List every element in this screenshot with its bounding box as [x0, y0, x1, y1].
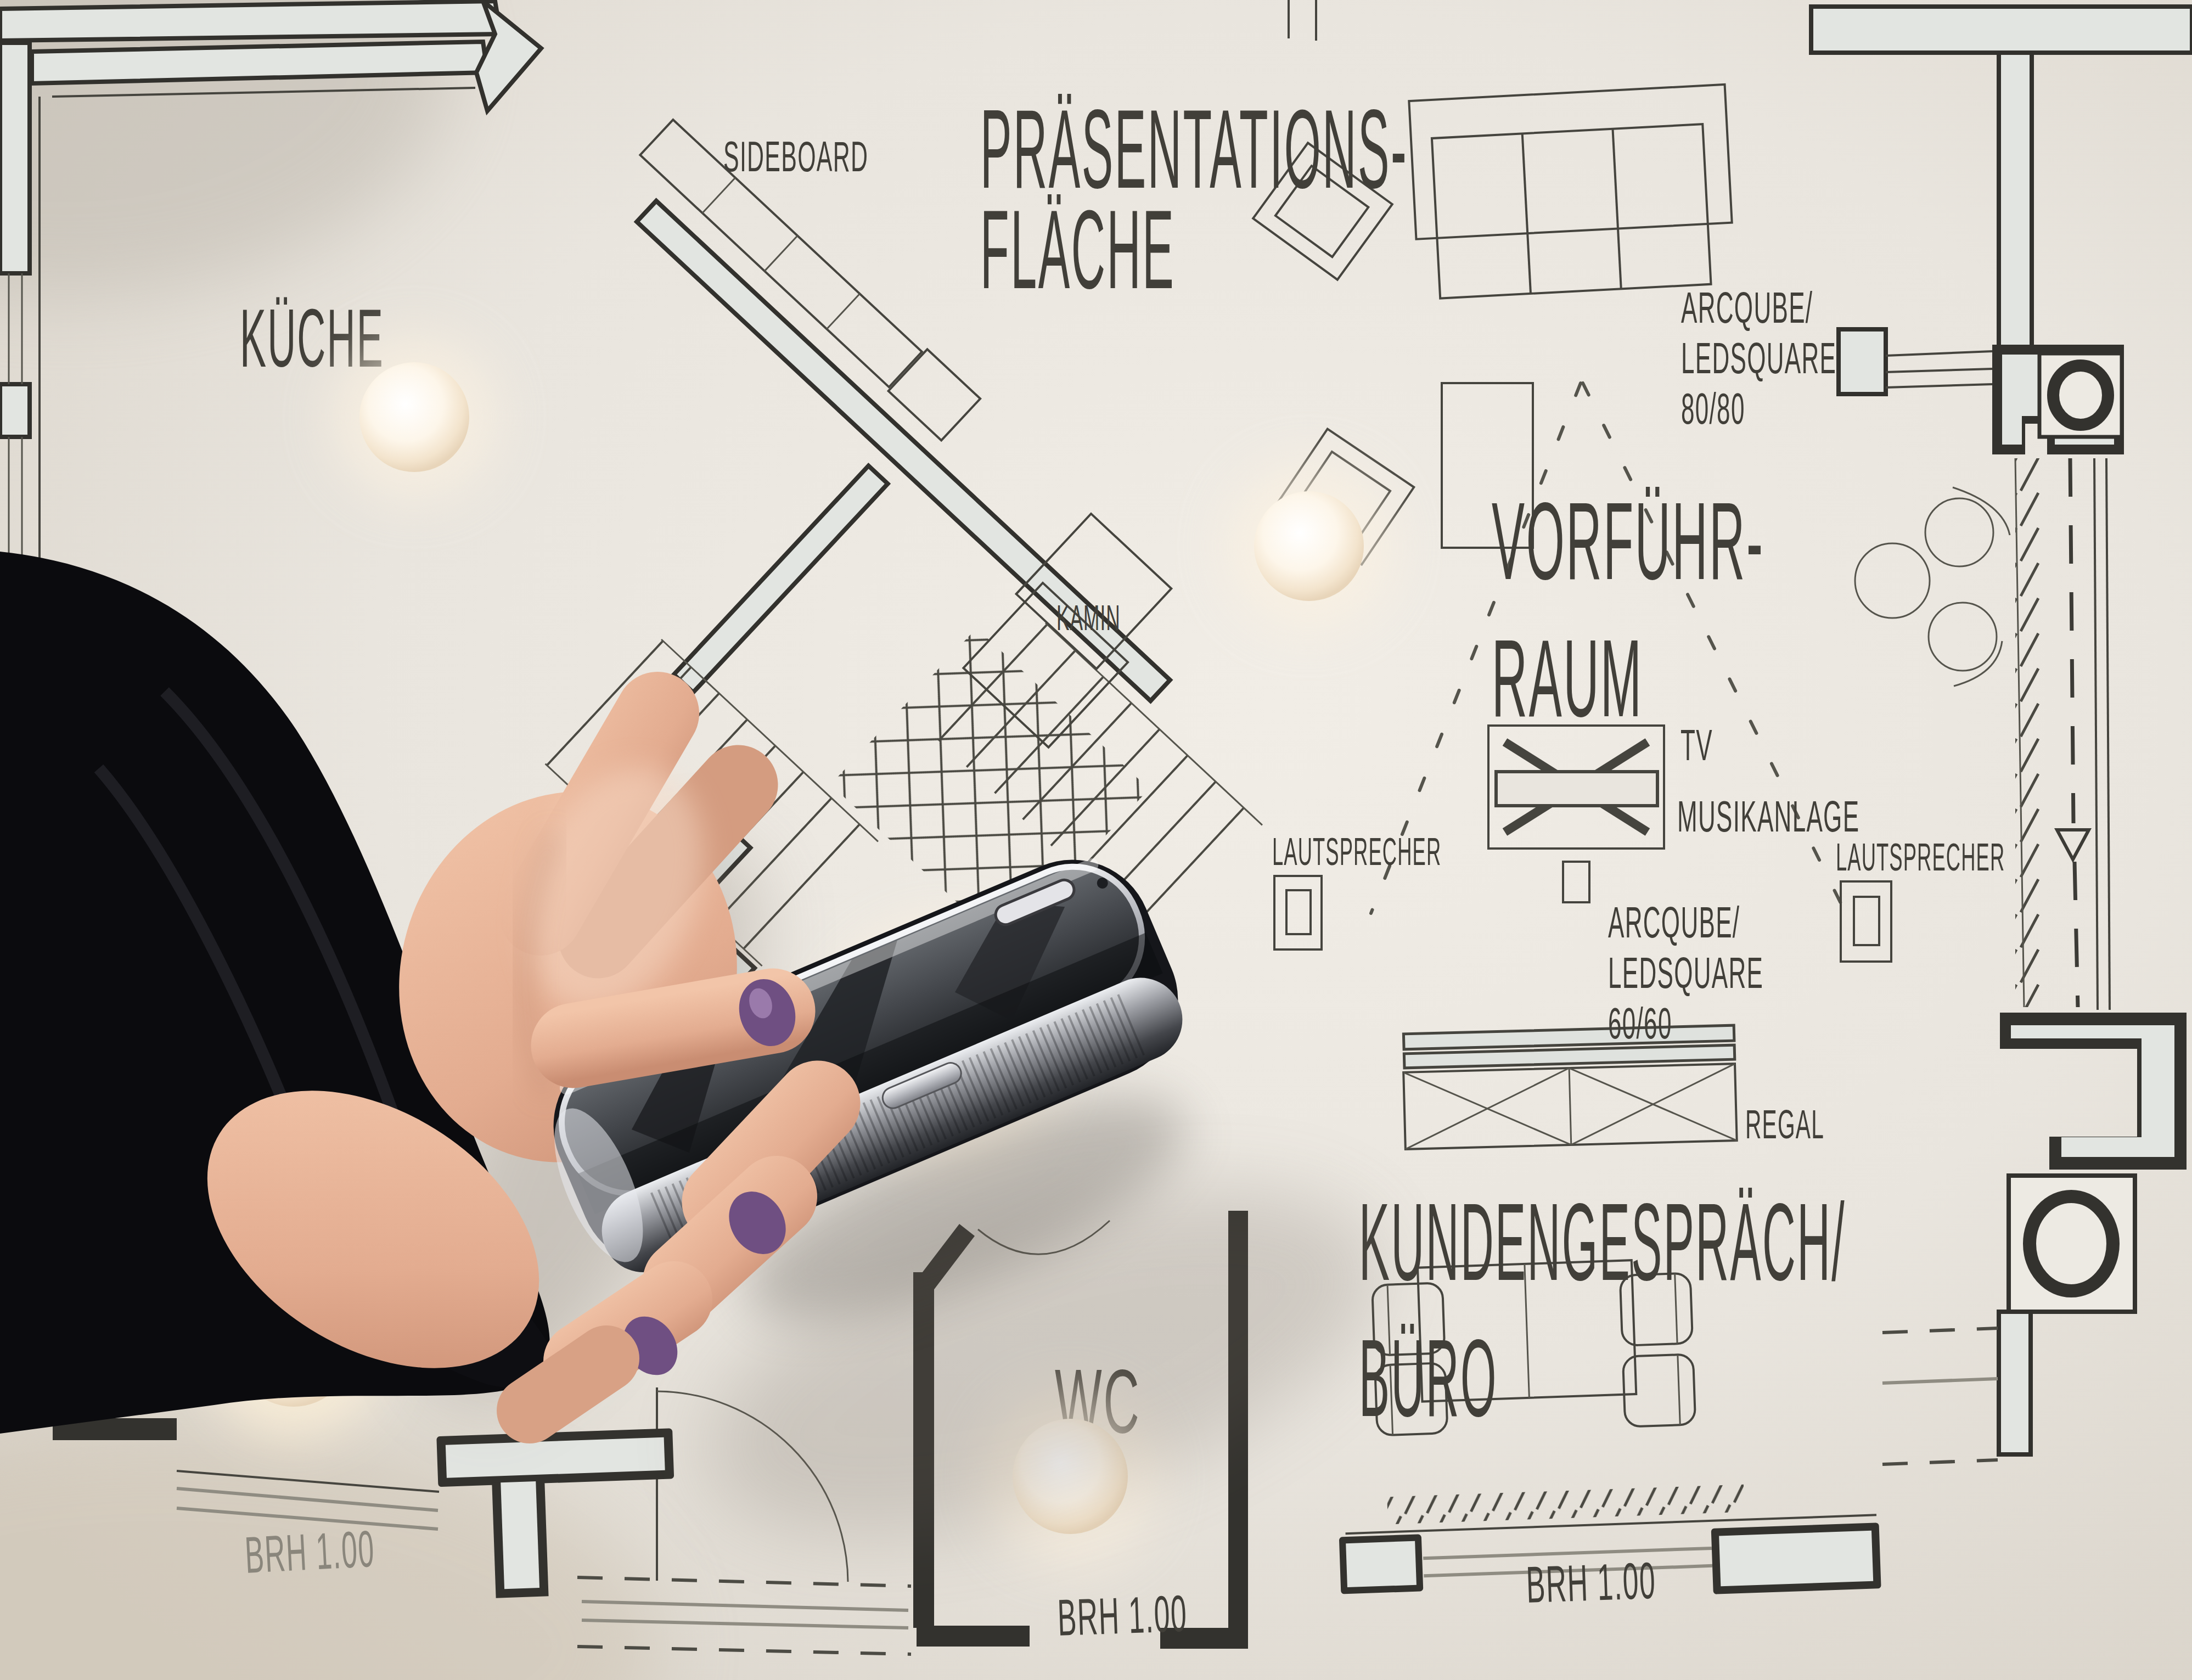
wall-light-2 — [1227, 464, 1391, 628]
label-regal: REGAL — [1745, 1102, 1824, 1147]
label-kamin: KAMIN — [1056, 598, 1121, 638]
wall-light-1 — [332, 335, 497, 499]
room-label-kundengespraech-1: KUNDENGESPRÄCH/ — [1359, 1181, 1846, 1303]
label-arcqube60-1: ARCQUBE/ — [1608, 898, 1740, 947]
label-sideboard: SIDEBOARD — [723, 132, 868, 180]
label-arcqube80-2: LEDSQUARE — [1681, 334, 1836, 383]
label-lautsprecher-right: LAUTSPRECHER — [1836, 836, 2005, 879]
room-label-vorfuehr-2: RAUM — [1492, 617, 1643, 739]
label-arcqube60-3: 60/60 — [1608, 999, 1672, 1048]
room-label-praesentation-2: FLÄCHE — [980, 187, 1175, 312]
label-arcqube80-3: 80/80 — [1681, 384, 1745, 433]
label-arcqube80-1: ARCQUBE/ — [1681, 283, 1813, 332]
label-brh-right: BRH 1.00 — [1525, 1551, 1657, 1614]
room-label-vorfuehr-1: VORFÜHR- — [1492, 480, 1764, 602]
label-tv: TV — [1680, 721, 1713, 769]
photo-of-floorplan-wall: KÜCHE SIDEBOARD PRÄSENTATIONS- FLÄCHE AR… — [0, 0, 2192, 1680]
label-musikanlage: MUSIKANLAGE — [1677, 792, 1859, 841]
pinky-finger — [530, 1358, 606, 1411]
room-label-kundengespraech-2: BÜRO — [1359, 1317, 1498, 1440]
label-arcqube60-2: LEDSQUARE — [1608, 948, 1763, 997]
label-lautsprecher-left: LAUTSPRECHER — [1272, 830, 1441, 873]
label-brh-center: BRH 1.00 — [1056, 1584, 1188, 1647]
label-brh-left: BRH 1.00 — [244, 1519, 376, 1584]
